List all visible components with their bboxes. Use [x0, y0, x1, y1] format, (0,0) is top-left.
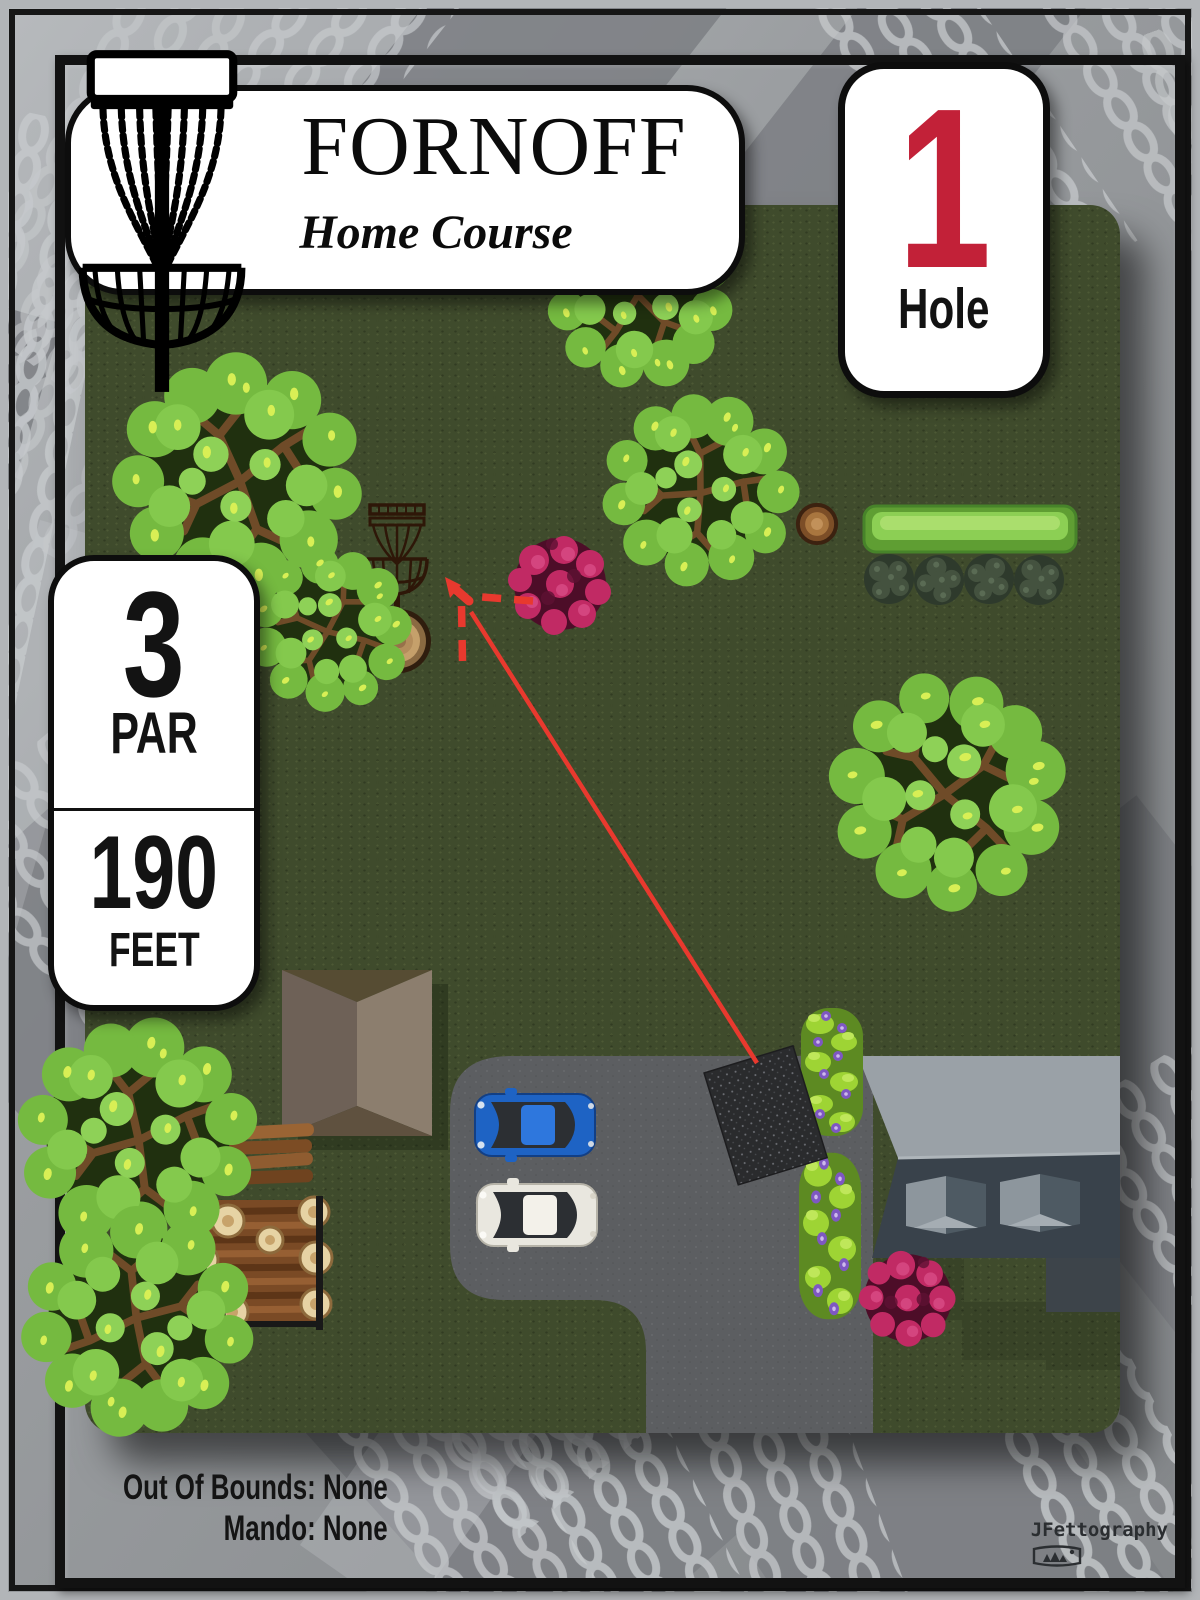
distance-value: 190	[90, 821, 218, 925]
out-of-bounds-text: Out Of Bounds: None	[123, 1468, 388, 1509]
mando-text: Mando: None	[224, 1509, 388, 1550]
disc-golf-hole-poster: FORNOFF Home Course 1 Hole 3	[0, 0, 1200, 1600]
hole-number-card: 1 Hole	[838, 62, 1050, 398]
hole-number: 1	[897, 75, 991, 303]
course-subtitle: Home Course	[221, 205, 651, 260]
par-label: PAR	[110, 705, 197, 763]
disc-golf-basket-logo-icon	[62, 46, 262, 396]
rules-text: Out Of Bounds: None Mando: None	[30, 1468, 388, 1549]
hole-label: Hole	[898, 281, 989, 338]
watermark-text: JFettography	[1031, 1520, 1168, 1541]
par-value: 3	[123, 569, 185, 719]
watermark: JFettography	[1031, 1520, 1168, 1569]
par-distance-card: 3 PAR 190 FEET	[48, 555, 260, 1011]
distance-label: FEET	[109, 927, 200, 975]
watermark-logo-icon	[1031, 1543, 1083, 1569]
course-name: FORNOFF	[271, 105, 717, 189]
